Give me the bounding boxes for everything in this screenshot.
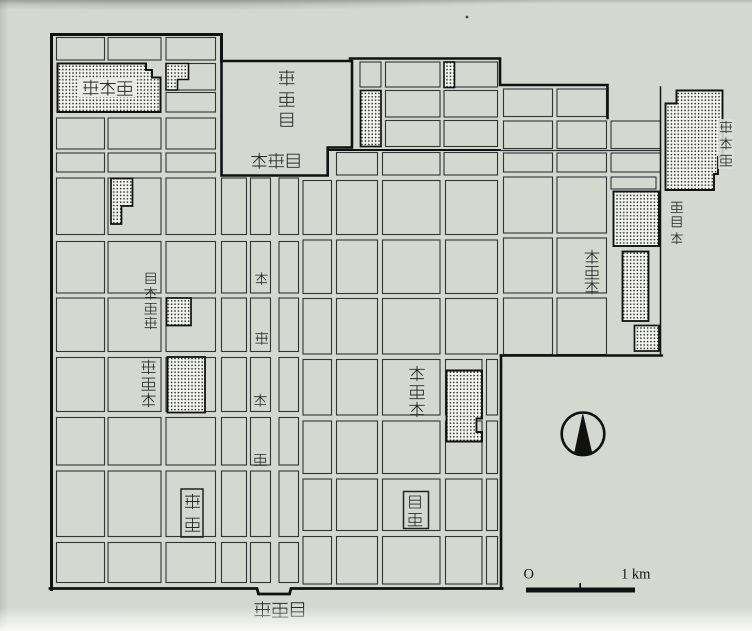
svg-text:O: O <box>524 567 534 583</box>
svg-text:1 km: 1 km <box>621 567 651 583</box>
